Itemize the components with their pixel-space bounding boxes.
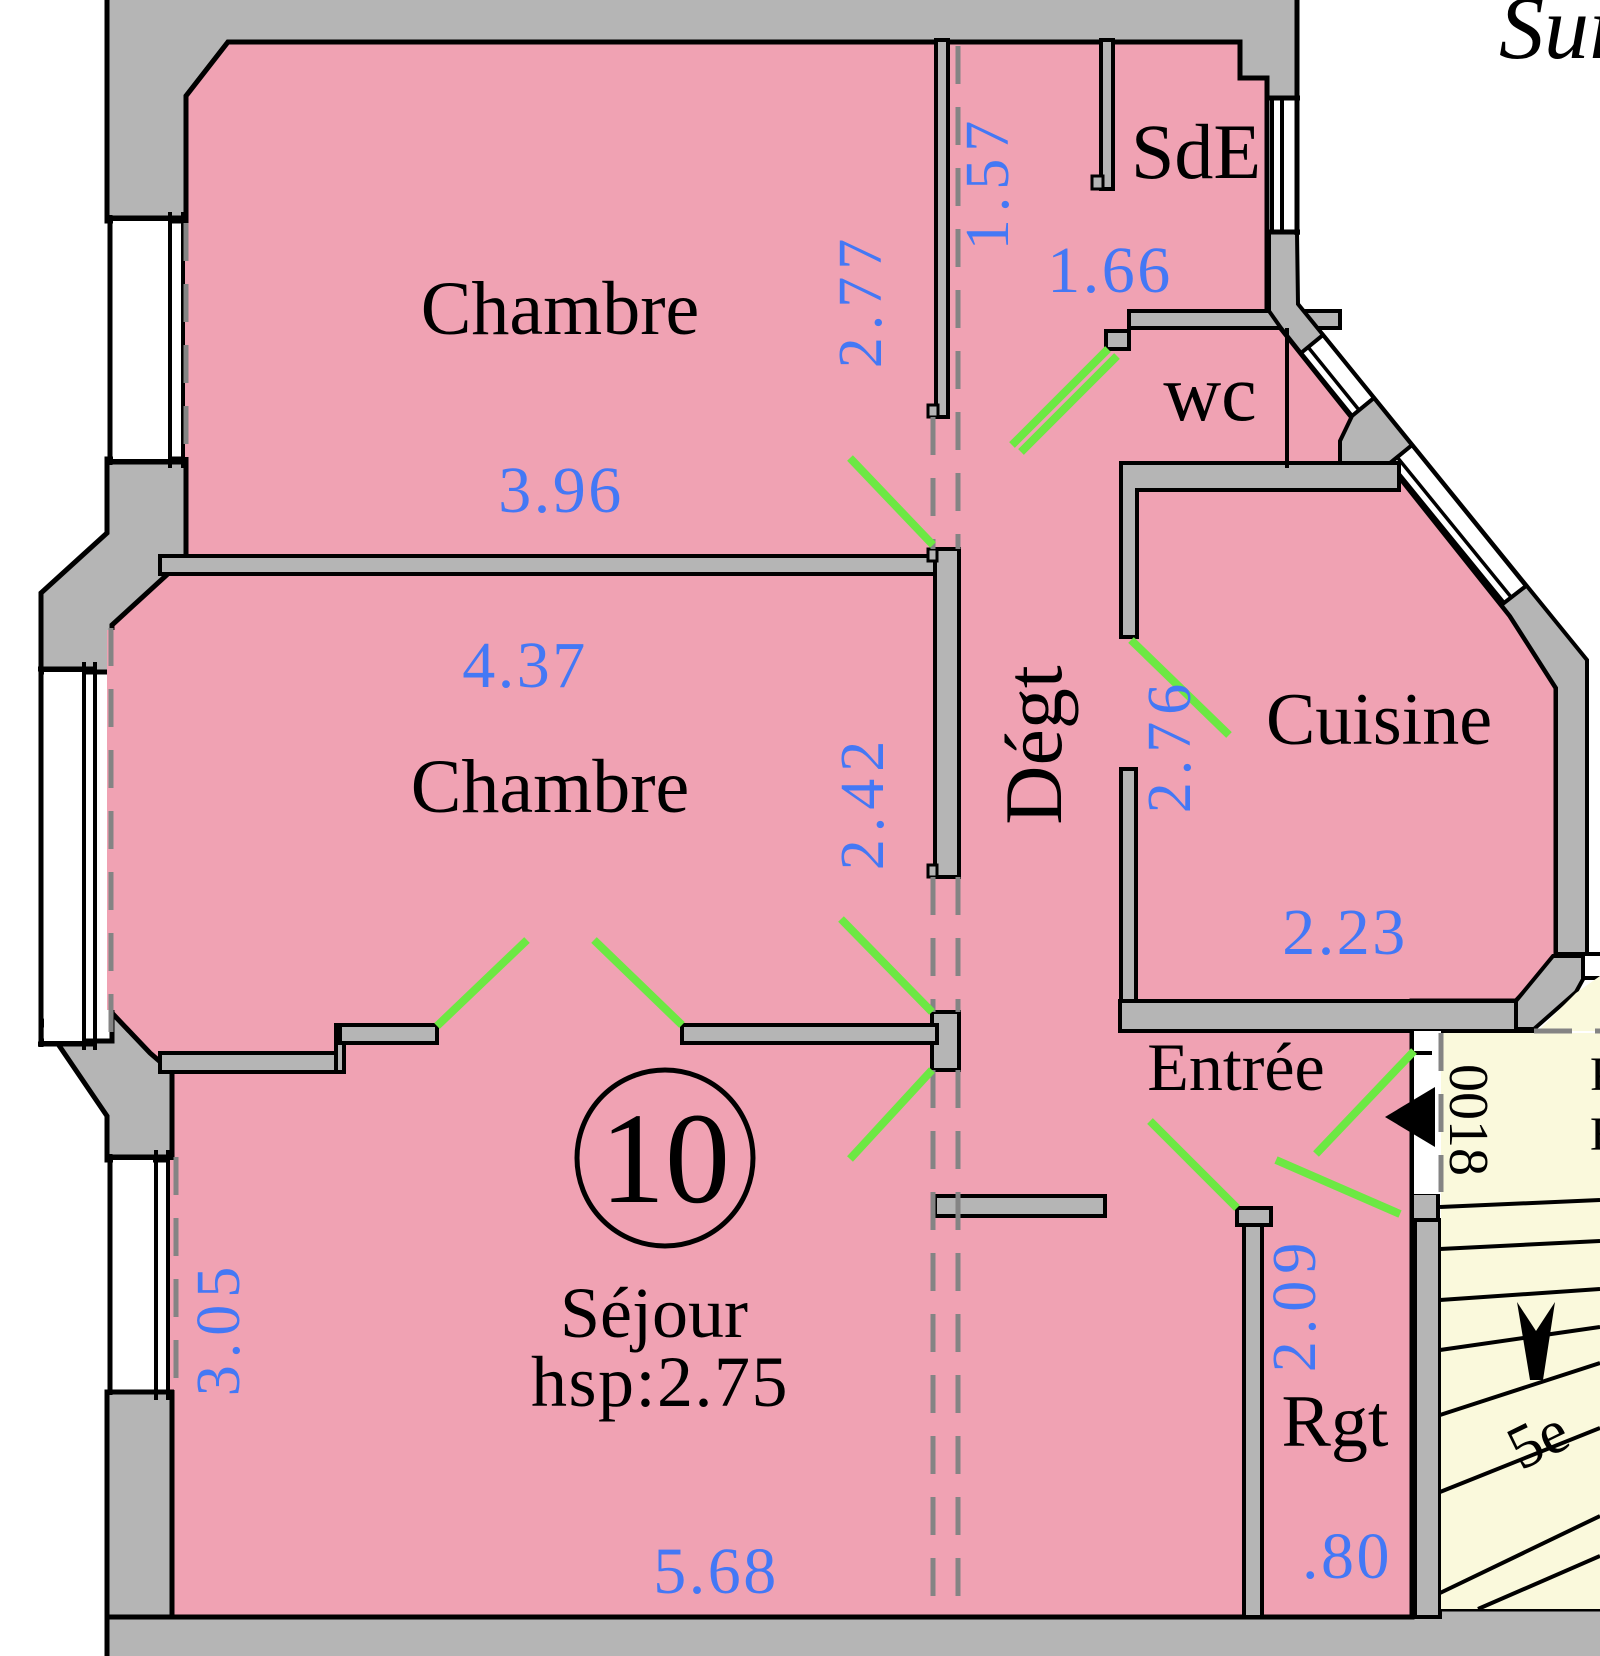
svg-text:3.96: 3.96 [498,454,624,527]
svg-text:Entrée: Entrée [1147,1029,1324,1105]
svg-text:1.66: 1.66 [1047,234,1173,307]
svg-text:hsp:2.75: hsp:2.75 [531,1342,789,1422]
svg-text:2.23: 2.23 [1282,896,1408,969]
svg-text:3.05: 3.05 [185,1260,253,1397]
svg-text:Séjour: Séjour [560,1273,748,1353]
svg-text:2.76: 2.76 [1136,677,1204,814]
svg-text:P: P [1590,1048,1600,1101]
svg-text:0018: 0018 [1437,1064,1499,1176]
svg-text:Sur: Sur [1499,0,1600,78]
svg-text:2.42: 2.42 [829,734,897,871]
svg-text:Rgt: Rgt [1282,1381,1389,1463]
svg-text:2.77: 2.77 [827,232,895,369]
svg-text:Dégt: Dégt [988,665,1079,825]
svg-text:2.09: 2.09 [1261,1236,1329,1373]
svg-text:1.57: 1.57 [954,114,1022,251]
svg-text:Chambre: Chambre [421,267,700,351]
svg-text:SdE: SdE [1131,108,1261,195]
svg-text:10: 10 [600,1087,730,1231]
svg-text:E: E [1590,1108,1600,1161]
svg-text:Chambre: Chambre [411,745,690,829]
svg-text:Cuisine: Cuisine [1266,679,1492,761]
svg-text:.80: .80 [1302,1520,1392,1593]
svg-text:4.37: 4.37 [462,629,588,702]
svg-text:wc: wc [1163,350,1256,438]
svg-text:5.68: 5.68 [653,1535,779,1608]
